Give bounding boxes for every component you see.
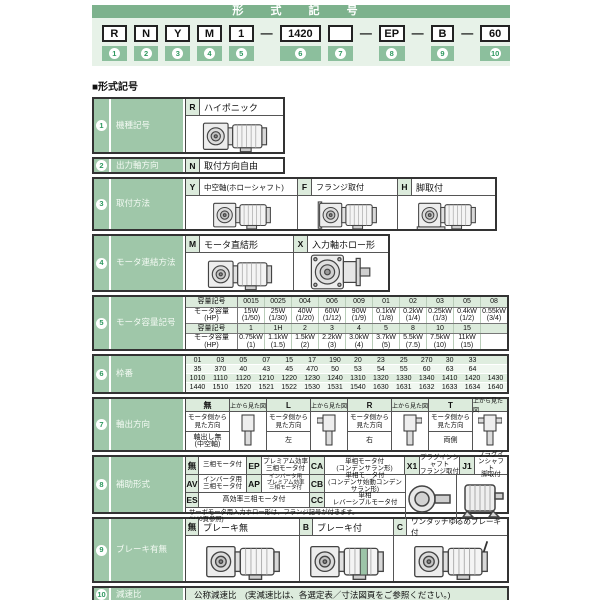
- capacity-value: 11kW (15): [454, 334, 481, 349]
- circled-number: 9: [96, 545, 107, 556]
- circled-number: 3: [172, 48, 183, 59]
- frame-number: 1634: [461, 383, 484, 391]
- code-number-badge: 4: [197, 46, 222, 61]
- shaft-option-both: T モータ側から 見た方向 両側: [429, 399, 473, 450]
- frame-number: 50: [324, 365, 347, 373]
- row-label: モータ連結方法: [111, 236, 185, 290]
- capacity-code: 1: [238, 324, 265, 334]
- option-no-brake: 無 ブレーキ無: [186, 519, 300, 581]
- option-hollow-input: X 入力軸ホロー形: [294, 236, 388, 290]
- option-header: X 入力軸ホロー形: [294, 236, 388, 253]
- code-badge: B: [300, 519, 313, 535]
- code-desc: 中空軸(ホローシャフト): [200, 179, 297, 195]
- code-segment-4: M 4: [197, 25, 222, 61]
- frame-number: 25: [392, 356, 415, 364]
- capacity-value: [481, 334, 507, 349]
- code-box: 60: [480, 25, 510, 42]
- catalog-page: 形 式 記 号 R 1 N 2 Y 3 M 4: [0, 0, 600, 600]
- frame-number: 35: [186, 365, 209, 373]
- code-number-badge: 5: [229, 46, 254, 61]
- circled-number: 10: [96, 589, 107, 600]
- row-label: 枠番: [111, 356, 185, 392]
- capacity-code: 0025: [265, 297, 292, 307]
- code-desc: 単相モータ付 (コンデンサ始動コンデンサラン形): [325, 475, 405, 492]
- frame-number: 17: [301, 356, 324, 364]
- row-content: Y 中空軸(ホローシャフト) F フランジ取付 H: [185, 179, 495, 229]
- code-badge: X: [294, 236, 308, 252]
- code-desc: ブレーキ無: [199, 519, 299, 535]
- gearbox-hollow-input-image: [294, 253, 388, 290]
- capacity-codes: 001500250040060090102030508: [238, 297, 507, 307]
- row-label: モータ容量記号: [111, 297, 185, 349]
- capacity-code: 03: [427, 297, 454, 307]
- capacity-code-row-1: 容量記号 001500250040060090102030508: [186, 297, 507, 308]
- code-segment-3: Y 3: [165, 25, 190, 61]
- row-output-shaft-direction: 2 出力軸方向 N 取付方向自由: [92, 157, 285, 174]
- code-badge: AV: [186, 475, 199, 492]
- frame-number: 40: [232, 365, 255, 373]
- circled-number: 2: [141, 48, 152, 59]
- frame-number: 1420: [461, 374, 484, 382]
- row-content: N 取付方向自由: [185, 159, 283, 172]
- circled-number: 8: [96, 479, 107, 490]
- top-view-none: 上から見た図: [230, 399, 267, 450]
- frame-number: 1320: [369, 374, 392, 382]
- row-label: 軸出方向: [111, 399, 185, 450]
- gearmotor-direct-image: [186, 253, 293, 290]
- row-content: 無 モータ側から 見た方向 軸出し無 (中空軸) 上から見た図 L モータ側から…: [185, 399, 507, 450]
- frame-number: 54: [369, 365, 392, 373]
- frame-number: 1120: [232, 374, 255, 382]
- frame-number: [484, 356, 507, 364]
- top-view-label: 上から見た図: [311, 399, 347, 412]
- code-box: 1: [229, 25, 254, 42]
- row-content: M モータ直結形 X 入力軸ホロー形: [185, 236, 388, 290]
- code-segment-6: 1420 6: [280, 25, 322, 61]
- frame-number: 1630: [369, 383, 392, 391]
- code-segment-9: B 9: [431, 25, 455, 61]
- circled-number: 4: [96, 258, 107, 269]
- capacity-code: 08: [481, 297, 507, 307]
- shaft-top-view-none-icon: [230, 412, 266, 450]
- code-desc: 単相 レバーシブルモータ付: [325, 493, 405, 507]
- row-mounting-method: 3 取付方法 Y 中空軸(ホローシャフト) F フランジ取付: [92, 177, 497, 231]
- motor-side-label: モータ側から 見た方向: [348, 412, 391, 432]
- top-view-both: 上から見た図: [473, 399, 507, 450]
- model-code-row: R 1 N 2 Y 3 M 4 1 5 —: [92, 18, 510, 61]
- row-label: ブレーキ有無: [111, 519, 185, 581]
- row-label: 機種記号: [111, 99, 185, 152]
- frame-number: 270: [415, 356, 438, 364]
- gearmotor-release-brake-image: [394, 536, 507, 581]
- option-motor-direct: M モータ直結形: [186, 236, 294, 290]
- top-view-left: 上から見た図: [311, 399, 348, 450]
- capacity-value: 1.1kW (1.5): [265, 334, 292, 349]
- capacity-value: 25W (1/30): [265, 308, 292, 323]
- code-segment-1: R 1: [102, 25, 127, 61]
- aux-row-c: ES 高効率三相モータ付 CC 単相 レバーシブルモータ付: [186, 493, 405, 508]
- capacity-table: 容量記号 001500250040060090102030508 モータ容量 (…: [185, 297, 507, 349]
- code-badge: F: [298, 179, 312, 195]
- capacity-value: 0.55kW (3/4): [481, 308, 507, 323]
- capacity-code: 02: [400, 297, 427, 307]
- code-segment-5: 1 5: [229, 25, 254, 61]
- circled-number: 7: [96, 419, 107, 430]
- circled-number: 7: [335, 48, 346, 59]
- frame-number: 1240: [324, 374, 347, 382]
- model-code-banner: 形 式 記 号 R 1 N 2 Y 3 M 4: [92, 5, 510, 66]
- frame-number: 30: [438, 356, 461, 364]
- capacity-code: 05: [454, 297, 481, 307]
- row-motor-connection: 4 モータ連結方法 M モータ直結形 X 入力軸ホロー形: [92, 234, 390, 292]
- frame-number: 1230: [301, 374, 324, 382]
- option-header: F フランジ取付: [298, 179, 397, 196]
- code-badge: EP: [247, 457, 262, 474]
- frame-number: [484, 365, 507, 373]
- code-badge: R: [348, 399, 391, 412]
- capacity-value: 0.1kW (1/8): [373, 308, 400, 323]
- capacity-code: 5: [373, 324, 400, 334]
- dash: —: [261, 25, 273, 42]
- frame-number: 43: [255, 365, 278, 373]
- frame-number: 1310: [346, 374, 369, 382]
- option-header: C ワンタッチゆるめブレーキ付: [394, 519, 507, 536]
- row-brake: 9 ブレーキ有無 無 ブレーキ無 B ブレーキ付: [92, 517, 509, 583]
- code-badge: Y: [186, 179, 200, 195]
- frame-number: 370: [209, 365, 232, 373]
- capacity-code: 004: [292, 297, 319, 307]
- content-wrap: 形 式 記 号 R 1 N 2 Y 3 M 4: [92, 5, 510, 600]
- circled-number: 4: [204, 48, 215, 59]
- code-badge: R: [186, 99, 200, 115]
- circled-number: 2: [96, 160, 107, 171]
- gearmotor-hollow-image: [186, 196, 297, 229]
- frame-number: 53: [346, 365, 369, 373]
- frame-number: 1530: [301, 383, 324, 391]
- capacity-code: 10: [427, 324, 454, 334]
- reduction-ratio-desc: 公称減速比 (実減速比は、各選定表／寸法図頁をご参照ください。): [186, 588, 507, 600]
- code-number-badge: 6: [280, 46, 322, 61]
- row-number: 6: [94, 356, 111, 392]
- code-badge: 無: [186, 457, 199, 474]
- frame-number: 33: [461, 356, 484, 364]
- frame-number: 01: [186, 356, 209, 364]
- gearmotor-no-brake-image: [186, 536, 299, 581]
- dash: —: [360, 25, 372, 42]
- capacity-value-row-1: モータ容量 (HP) 15W (1/50)25W (1/30)40W (1/20…: [186, 308, 507, 324]
- row-number: 9: [94, 519, 111, 581]
- circled-number: 6: [96, 369, 107, 380]
- code-desc: 取付方向自由: [200, 159, 283, 172]
- frame-number: 1220: [278, 374, 301, 382]
- capacity-values: 0.75kW (1)1.1kW (1.5)1.5kW (2)2.2kW (3)3…: [238, 334, 507, 349]
- code-number-badge: 10: [480, 46, 510, 61]
- code-badge: N: [186, 159, 200, 172]
- option-foot-mount: H 脚取付: [398, 179, 495, 229]
- aux-left-block: AV インバータ用 三相モータ付 AP インバータ用 プレミアム効率 三相モータ…: [186, 475, 406, 524]
- code-badge: AP: [247, 475, 262, 492]
- row-shaft-output-direction: 7 軸出方向 無 モータ側から 見た方向 軸出し無 (中空軸) 上から見た図 L…: [92, 397, 509, 452]
- capacity-value: 0.2kW (1/4): [400, 308, 427, 323]
- frame-number: 1520: [232, 383, 255, 391]
- gearmotor-foot-image: [398, 196, 495, 229]
- gearmotor-flange-image: [298, 196, 397, 229]
- code-segment-10: 60 10: [480, 25, 510, 61]
- code-badge: M: [186, 236, 200, 252]
- code-number-badge: 8: [379, 46, 405, 61]
- capacity-value-row-2: モータ容量 (HP) 0.75kW (1)1.1kW (1.5)1.5kW (2…: [186, 334, 507, 349]
- code-badge: C: [394, 519, 407, 535]
- capacity-code: 009: [346, 297, 373, 307]
- dash: —: [412, 25, 424, 42]
- option-flange-mount: F フランジ取付: [298, 179, 398, 229]
- row-content: R ハイポニック: [185, 99, 283, 152]
- frame-number: 07: [255, 356, 278, 364]
- top-view-label: 上から見た図: [230, 399, 266, 412]
- row-label: 取付方法: [111, 179, 185, 229]
- grid-row: 1010111011201210122012301240131013201330…: [186, 374, 507, 383]
- code-desc: フランジ取付: [312, 179, 397, 195]
- code-desc: インバータ用 三相モータ付: [199, 475, 247, 492]
- shaft-option-left: L モータ側から 見た方向 左: [267, 399, 311, 450]
- row-number: 10: [94, 588, 111, 600]
- code-badge: CB: [310, 475, 325, 492]
- motor-side-label: モータ側から 見た方向: [186, 412, 229, 432]
- circled-number: 5: [96, 318, 107, 329]
- capacity-code-row-2: 容量記号 11H234581015: [186, 324, 507, 335]
- code-desc: プレミアム効率 三相モータ付: [262, 457, 310, 474]
- option-header: H 脚取付: [398, 179, 495, 196]
- row-label: 補助形式: [111, 457, 185, 512]
- row-content: 公称減速比 (実減速比は、各選定表／寸法図頁をご参照ください。): [185, 588, 507, 600]
- capacity-value: 0.25kW (1/3): [427, 308, 454, 323]
- code-badge: 無: [186, 399, 229, 412]
- grid-row: 0103050715171902023252703033: [186, 356, 507, 365]
- capacity-value: 2.2kW (3): [319, 334, 346, 349]
- frame-number: 15: [278, 356, 301, 364]
- circled-number: 10: [490, 48, 501, 59]
- capacity-code: 0015: [238, 297, 265, 307]
- code-badge: H: [398, 179, 412, 195]
- frame-number: 1521: [255, 383, 278, 391]
- code-box: B: [431, 25, 455, 42]
- row-number: 3: [94, 179, 111, 229]
- dash: —: [461, 25, 473, 42]
- code-box: 1420: [280, 25, 322, 42]
- frame-number: 1440: [186, 383, 209, 391]
- capacity-value: 0.75kW (1): [238, 334, 265, 349]
- frame-number: 1540: [346, 383, 369, 391]
- row-number: 8: [94, 457, 111, 512]
- frame-number: 05: [232, 356, 255, 364]
- circled-number: 1: [109, 48, 120, 59]
- frame-number: 1430: [484, 374, 507, 382]
- code-number-badge: 3: [165, 46, 190, 61]
- code-desc: インバータ用 プレミアム効率 三相モータ付: [262, 475, 310, 492]
- frame-number: 64: [461, 365, 484, 373]
- top-view-right: 上から見た図: [392, 399, 429, 450]
- capacity-value: 7.5kW (10): [427, 334, 454, 349]
- frame-number: 1510: [209, 383, 232, 391]
- code-badge: 無: [186, 519, 199, 535]
- code-number-badge: 1: [102, 46, 127, 61]
- motor-side-label: モータ側から 見た方向: [429, 412, 472, 432]
- capacity-value: 15W (1/50): [238, 308, 265, 323]
- circled-number: 1: [96, 120, 107, 131]
- code-box: Y: [165, 25, 190, 42]
- frame-number: 1410: [438, 374, 461, 382]
- shaft-value: 軸出し無 (中空軸): [186, 432, 229, 450]
- grid-row: 1440151015201521152215301531154016301631…: [186, 383, 507, 392]
- code-segment-8: EP 8: [379, 25, 405, 61]
- row-number: 4: [94, 236, 111, 290]
- capacity-value: 5.5kW (7.5): [400, 334, 427, 349]
- code-desc: 入力軸ホロー形: [308, 236, 388, 252]
- code-box: M: [197, 25, 222, 42]
- option-header: R ハイポニック: [186, 99, 283, 116]
- row-number: 1: [94, 99, 111, 152]
- shaft-value: 右: [348, 432, 391, 450]
- shaft-value: 左: [267, 432, 310, 450]
- capacity-value: 0.4kW (1/2): [454, 308, 481, 323]
- capacity-value: 40W (1/20): [292, 308, 319, 323]
- code-desc: ハイポニック: [200, 99, 283, 115]
- frame-number: 1010: [186, 374, 209, 382]
- code-badge: ES: [186, 493, 199, 507]
- code-desc: 脚取付: [412, 179, 495, 195]
- shaft-top-view-both-icon: [473, 412, 507, 450]
- capacity-code-label: 容量記号: [186, 324, 238, 334]
- code-box: EP: [379, 25, 405, 42]
- frame-number: 470: [301, 365, 324, 373]
- frame-number: 1631: [392, 383, 415, 391]
- top-view-label: 上から見た図: [392, 399, 428, 412]
- capacity-value: 3.0kW (4): [346, 334, 373, 349]
- capacity-value-label: モータ容量 (HP): [186, 334, 238, 349]
- frame-number: 1210: [255, 374, 278, 382]
- code-badge: CA: [310, 457, 325, 474]
- section-heading: ■形式記号: [92, 78, 510, 93]
- code-badge: T: [429, 399, 472, 412]
- capacity-code: [481, 324, 507, 334]
- circled-number: 8: [386, 48, 397, 59]
- circled-number: 3: [96, 199, 107, 210]
- option-header: Y 中空軸(ホローシャフト): [186, 179, 297, 196]
- top-view-label: 上から見た図: [473, 399, 507, 412]
- shaft-top-view-left-icon: [311, 412, 347, 450]
- code-badge: X1: [405, 457, 420, 474]
- capacity-value: 60W (1/12): [319, 308, 346, 323]
- option-hollow-shaft: Y 中空軸(ホローシャフト): [186, 179, 298, 229]
- code-desc: 三相モータ付: [199, 457, 247, 474]
- capacity-code: 01: [373, 297, 400, 307]
- capacity-code: 4: [346, 324, 373, 334]
- gearmotor-image: [186, 116, 283, 152]
- frame-number: 20: [346, 356, 369, 364]
- capacity-code: 2: [292, 324, 319, 334]
- row-motor-capacity: 5 モータ容量記号 容量記号 0015002500400600901020305…: [92, 295, 509, 351]
- circled-number: 5: [236, 48, 247, 59]
- grid-row: 3537040434547050535455606364: [186, 365, 507, 374]
- capacity-code: 006: [319, 297, 346, 307]
- frame-number: 1633: [438, 383, 461, 391]
- row-content: 無 ブレーキ無 B ブレーキ付 C: [185, 519, 507, 581]
- capacity-value: 1.5kW (2): [292, 334, 319, 349]
- code-number-badge: 2: [134, 46, 159, 61]
- capacity-code: 3: [319, 324, 346, 334]
- frame-number: 1531: [324, 383, 347, 391]
- frame-number: 23: [369, 356, 392, 364]
- row-auxiliary-type: 8 補助形式 無 三相モータ付 EP プレミアム効率 三相モータ付 CA 単相モ…: [92, 455, 509, 514]
- code-badge: L: [267, 399, 310, 412]
- frame-number: 1110: [209, 374, 232, 382]
- row-number: 2: [94, 159, 111, 172]
- frame-number: 03: [209, 356, 232, 364]
- capacity-value-label: モータ容量 (HP): [186, 308, 238, 323]
- aux-row-b: AV インバータ用 三相モータ付 AP インバータ用 プレミアム効率 三相モータ…: [186, 475, 405, 493]
- code-desc: ブレーキ付: [313, 519, 393, 535]
- option-one-touch-brake: C ワンタッチゆるめブレーキ付: [394, 519, 507, 581]
- code-desc: プラグインシャフト フランジ取付: [420, 457, 460, 474]
- shaft-value: 両側: [429, 432, 472, 450]
- code-number-badge: 9: [431, 46, 455, 61]
- frame-number: 60: [415, 365, 438, 373]
- option-with-brake: B ブレーキ付: [300, 519, 394, 581]
- code-desc: プラグインシャフト 脚取付: [475, 457, 507, 474]
- capacity-value: 3.7kW (5): [373, 334, 400, 349]
- frame-number: 190: [324, 356, 347, 364]
- frame-number: 63: [438, 365, 461, 373]
- code-desc: ワンタッチゆるめブレーキ付: [407, 519, 507, 535]
- capacity-values: 15W (1/50)25W (1/30)40W (1/20)60W (1/12)…: [238, 308, 507, 323]
- row-frame-number: 6 枠番 01030507151719020232527030333537040…: [92, 354, 509, 394]
- code-badge: CC: [310, 493, 325, 507]
- code-box-blank: [328, 25, 353, 42]
- option-header: 無 ブレーキ無: [186, 519, 299, 536]
- capacity-code-label: 容量記号: [186, 297, 238, 307]
- option-header: M モータ直結形: [186, 236, 293, 253]
- row-model-type: 1 機種記号 R ハイポニック: [92, 97, 285, 154]
- frame-number-grid: 0103050715171902023252703033353704043454…: [185, 356, 507, 392]
- row-label: 出力軸方向: [111, 159, 185, 172]
- capacity-code: 15: [454, 324, 481, 334]
- capacity-codes: 11H234581015: [238, 324, 507, 334]
- frame-number: 1522: [278, 383, 301, 391]
- banner-title: 形 式 記 号: [92, 5, 510, 18]
- capacity-code: 1H: [265, 324, 292, 334]
- capacity-code: 8: [400, 324, 427, 334]
- code-desc: モータ直結形: [200, 236, 293, 252]
- row-number: 7: [94, 399, 111, 450]
- frame-number: 1640: [484, 383, 507, 391]
- frame-number: 1632: [415, 383, 438, 391]
- capacity-value: 90W (1/9): [346, 308, 373, 323]
- row-number: 5: [94, 297, 111, 349]
- frame-number: 55: [392, 365, 415, 373]
- code-badge: J1: [460, 457, 475, 474]
- code-box: R: [102, 25, 127, 42]
- code-segment-2: N 2: [134, 25, 159, 61]
- row-content: 無 三相モータ付 EP プレミアム効率 三相モータ付 CA 単相モータ付 (コン…: [185, 457, 507, 512]
- shaft-option-right: R モータ側から 見た方向 右: [348, 399, 392, 450]
- code-number-badge: 7: [328, 46, 353, 61]
- frame-number: 45: [278, 365, 301, 373]
- frame-number: 1340: [415, 374, 438, 382]
- frame-number: 1330: [392, 374, 415, 382]
- row-reduction-ratio: 10 減速比 公称減速比 (実減速比は、各選定表／寸法図頁をご参照ください。): [92, 586, 509, 600]
- code-box: N: [134, 25, 159, 42]
- gearmotor-brake-image: [300, 536, 393, 581]
